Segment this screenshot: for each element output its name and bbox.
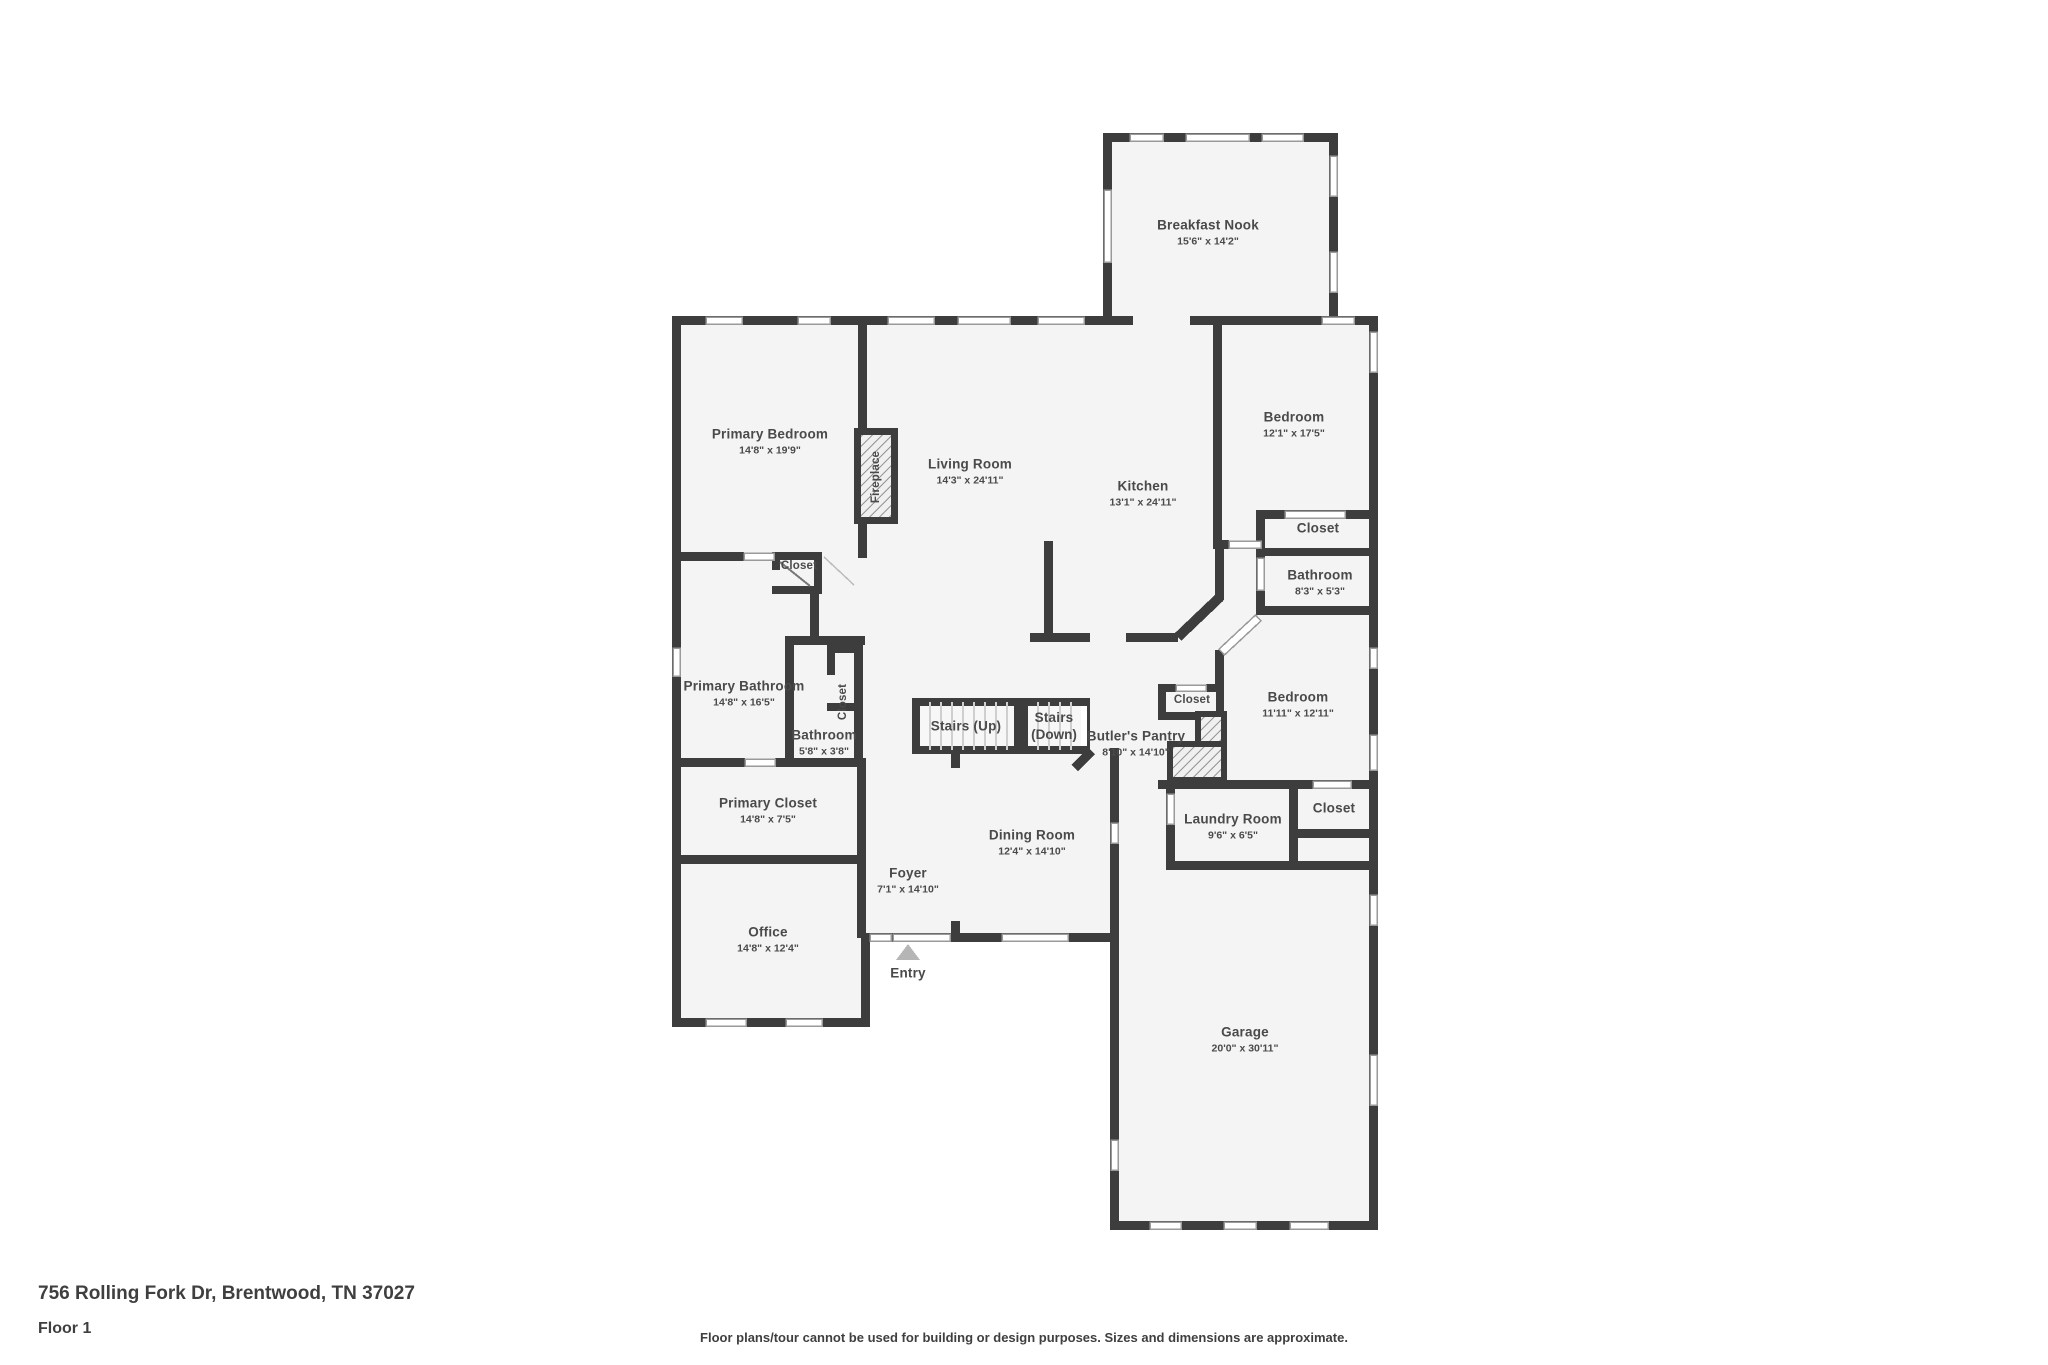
room-label-fireplace: Fireplace	[869, 451, 883, 503]
disclaimer-text: Floor plans/tour cannot be used for buil…	[0, 1330, 2048, 1345]
room-label-living-room: Living Room 14'3" x 24'11"	[928, 457, 1012, 488]
room-label-closet-primary-bedroom: Closet	[781, 559, 817, 573]
room-label-primary-bathroom: Primary Bathroom 14'8" x 16'5"	[684, 679, 805, 710]
room-label-bathroom-upper: Bathroom 8'3" x 5'3"	[1287, 568, 1352, 599]
room-label-office: Office 14'8" x 12'4"	[737, 925, 799, 956]
room-label-closet-upper: Closet	[1297, 521, 1339, 538]
room-label-foyer: Foyer 7'1" x 14'10"	[877, 866, 939, 897]
room-label-bedroom-upper: Bedroom 12'1" x 17'5"	[1263, 410, 1325, 441]
floor-plan-page: Breakfast Nook 15'6" x 14'2" Primary Bed…	[0, 0, 2048, 1365]
room-label-laundry-room: Laundry Room 9'6" x 6'5"	[1184, 812, 1282, 843]
entry-arrow-icon	[896, 944, 920, 960]
room-label-breakfast-nook: Breakfast Nook 15'6" x 14'2"	[1157, 218, 1259, 249]
room-label-kitchen: Kitchen 13'1" x 24'11"	[1110, 479, 1177, 510]
room-label-primary-bedroom: Primary Bedroom 14'8" x 19'9"	[712, 427, 828, 458]
room-label-bathroom-small: Bathroom 5'8" x 3'8"	[791, 728, 856, 759]
room-label-closet-vertical: Closet	[836, 684, 850, 720]
floor-plan-drawing	[0, 0, 2048, 1365]
room-label-stairs-down: Stairs (Down)	[1031, 710, 1077, 744]
room-label-butlers-pantry: Butler's Pantry 8'10" x 14'10"	[1087, 729, 1186, 760]
room-label-entry: Entry	[890, 966, 926, 983]
room-label-garage: Garage 20'0" x 30'11"	[1212, 1025, 1279, 1056]
room-label-primary-closet: Primary Closet 14'8" x 7'5"	[719, 796, 817, 827]
room-label-stairs-up: Stairs (Up)	[931, 719, 1001, 736]
room-label-dining-room: Dining Room 12'4" x 14'10"	[989, 828, 1075, 859]
room-label-closet-laundry: Closet	[1313, 801, 1355, 818]
room-label-closet-pantry: Closet	[1174, 693, 1210, 707]
property-address: 756 Rolling Fork Dr, Brentwood, TN 37027	[38, 1283, 415, 1305]
room-label-bedroom-middle: Bedroom 11'11" x 12'11"	[1262, 690, 1334, 721]
